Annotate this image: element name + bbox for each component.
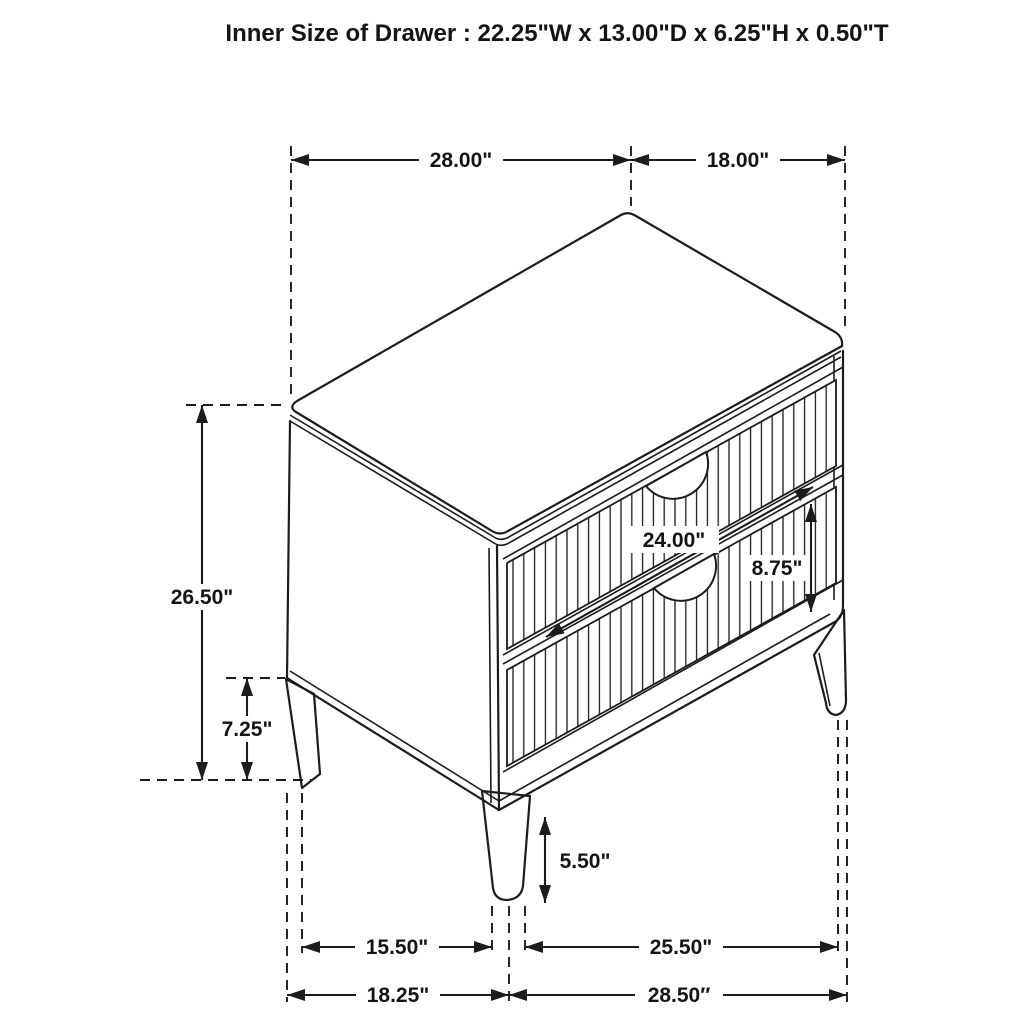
dim-drawer-width-label: 24.00" [643,529,706,552]
front-leg [482,791,530,900]
dim-top-depth-label: 18.00" [707,149,770,172]
dim-top-width-label: 28.00" [430,149,493,172]
back-left-leg [286,679,320,788]
dim-leg-span-side-label: 15.50" [366,936,429,959]
dim-side-leg-height-label: 7.25" [222,718,273,741]
front-corner-post-inner [489,548,491,803]
dim-leg-span-front-label: 25.50" [650,936,713,959]
diagram-title: Inner Size of Drawer : 22.25"W x 13.00"D… [225,20,888,47]
dim-front-leg-height-label: 5.50" [560,850,611,873]
dim-overall-depth-label: 18.25" [367,984,430,1007]
dim-drawer-height-label: 8.75" [752,557,803,580]
dimension-diagram: Inner Size of Drawer : 22.25"W x 13.00"D… [0,0,1024,1024]
dim-overall-width-label: 28.50″ [648,984,711,1007]
front-corner-post-outer [497,546,499,810]
dim-overall-height-label: 26.50" [171,586,234,609]
diagram-page: Inner Size of Drawer : 22.25"W x 13.00"D… [0,0,1024,1024]
